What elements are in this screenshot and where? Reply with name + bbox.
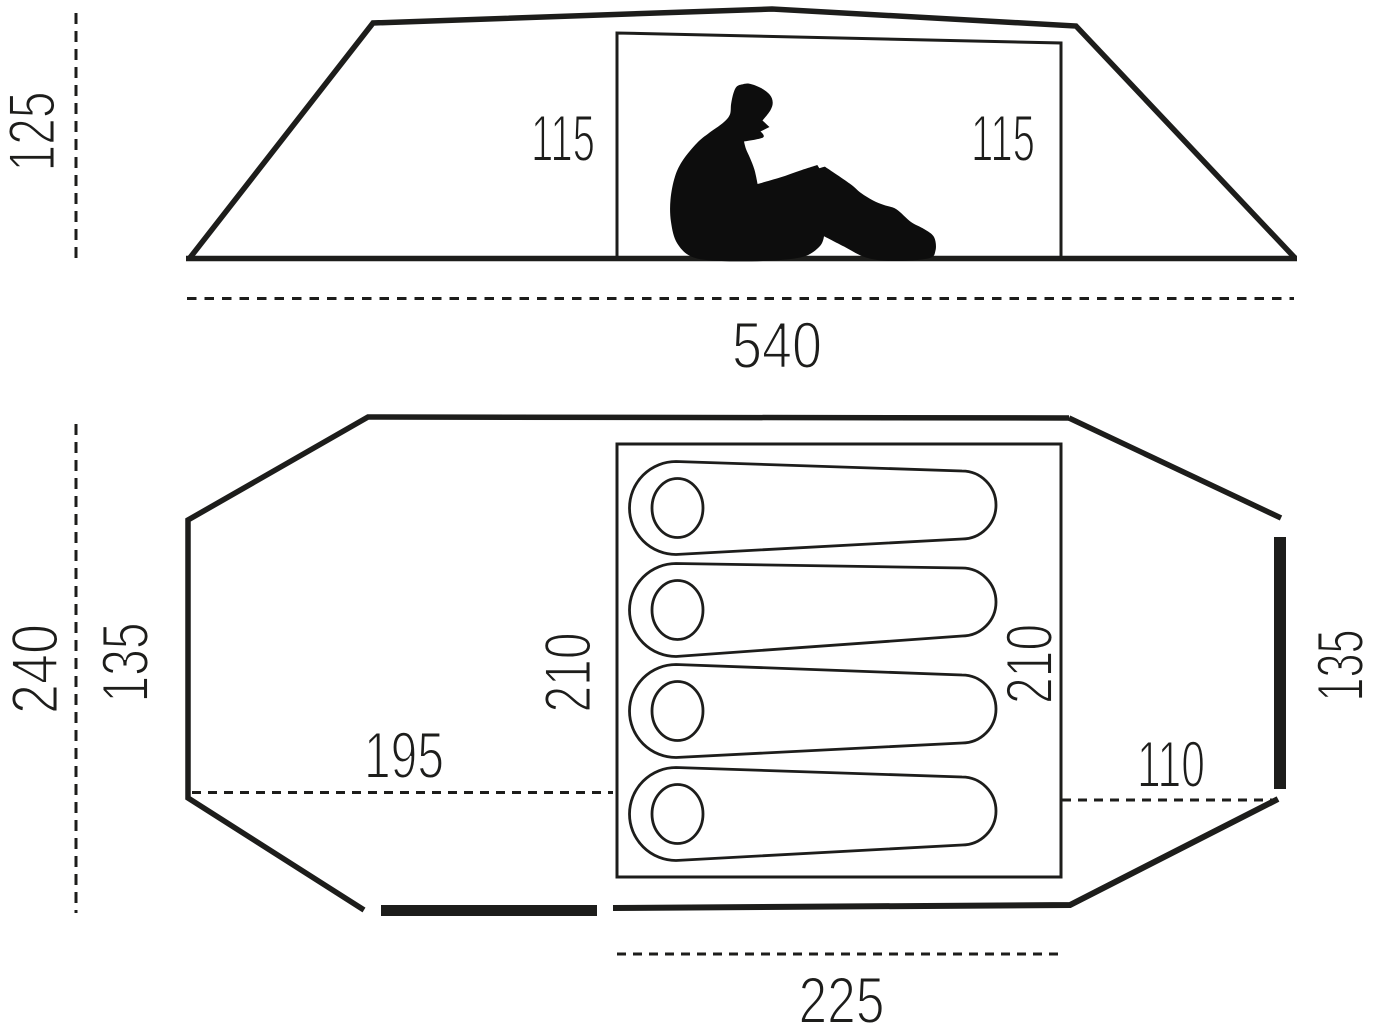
svg-text:110: 110 bbox=[1137, 727, 1205, 801]
svg-text:195: 195 bbox=[364, 718, 444, 792]
svg-text:135: 135 bbox=[1303, 630, 1373, 702]
svg-text:210: 210 bbox=[992, 624, 1066, 704]
svg-text:225: 225 bbox=[799, 963, 885, 1030]
svg-text:115: 115 bbox=[971, 101, 1035, 175]
svg-text:210: 210 bbox=[531, 633, 605, 713]
svg-text:540: 540 bbox=[732, 308, 822, 382]
svg-text:135: 135 bbox=[88, 623, 162, 703]
svg-text:125: 125 bbox=[0, 92, 69, 172]
svg-text:240: 240 bbox=[0, 624, 72, 714]
svg-text:115: 115 bbox=[531, 101, 595, 175]
